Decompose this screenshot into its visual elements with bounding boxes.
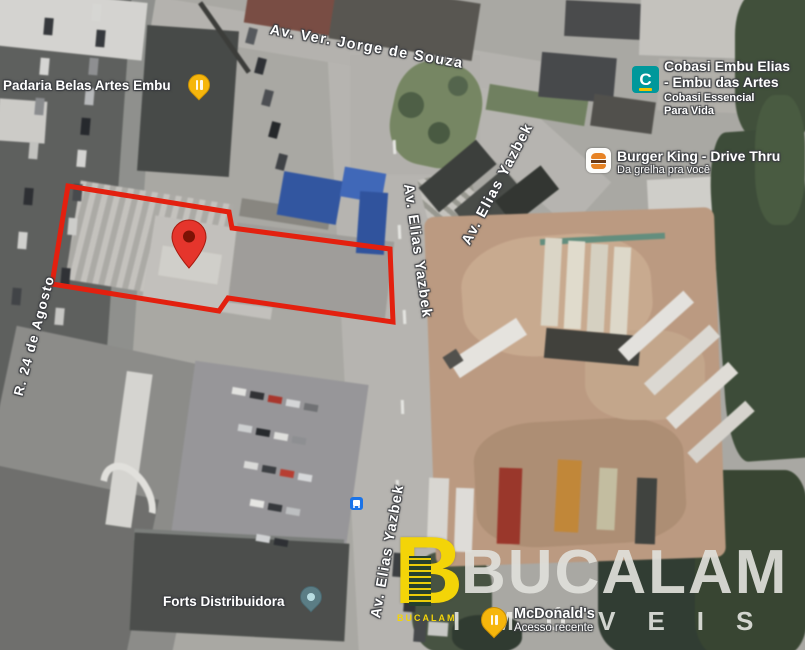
poi-label-forts[interactable]: Forts Distribuidora — [163, 594, 285, 610]
cobasi-letter: C — [639, 70, 651, 90]
satellite-map[interactable]: Av. Ver. Jorge de Souza Av. Elias Yazbek… — [0, 0, 805, 650]
bus-wheel — [353, 506, 355, 508]
cobasi-sub-line2: Para Vida — [664, 105, 790, 118]
burger-king-name: Burger King - Drive Thru — [617, 148, 780, 164]
cobasi-sub-line1: Cobasi Essencial — [664, 92, 790, 105]
fork-knife-icon — [482, 608, 506, 632]
bus-glyph — [353, 500, 360, 506]
poi-label-padaria[interactable]: Padaria Belas Artes Embu — [3, 78, 171, 94]
property-boundary-polygon — [52, 186, 393, 322]
mcdonalds-name: McDonald's — [514, 606, 595, 622]
location-pin-icon[interactable] — [171, 219, 207, 269]
burger-bun-top — [591, 153, 606, 159]
burger-patty — [591, 160, 606, 163]
poi-label-burger-king[interactable]: Burger King - Drive Thru Da grelha pra v… — [617, 148, 780, 177]
cobasi-name-line2: - Embu das Artes — [664, 74, 790, 90]
fork-knife-icon — [189, 75, 209, 95]
burger-bun-bottom — [591, 164, 606, 169]
cobasi-store-icon[interactable]: C — [632, 66, 659, 93]
poi-label-mcdonalds[interactable]: McDonald's Acesso recente — [514, 606, 595, 635]
pin-dot-icon — [301, 587, 321, 607]
burger-icon[interactable] — [586, 148, 611, 173]
cobasi-name-line1: Cobasi Embu Elias — [664, 58, 790, 74]
bus-stop-icon[interactable] — [350, 497, 363, 510]
bus-wheel — [358, 506, 360, 508]
mcdonalds-subtitle: Acesso recente — [514, 622, 595, 635]
cobasi-icon-bar — [639, 88, 652, 91]
burger-king-subtitle: Da grelha pra você — [617, 164, 780, 177]
poi-label-cobasi[interactable]: Cobasi Embu Elias - Embu das Artes Cobas… — [664, 58, 790, 118]
